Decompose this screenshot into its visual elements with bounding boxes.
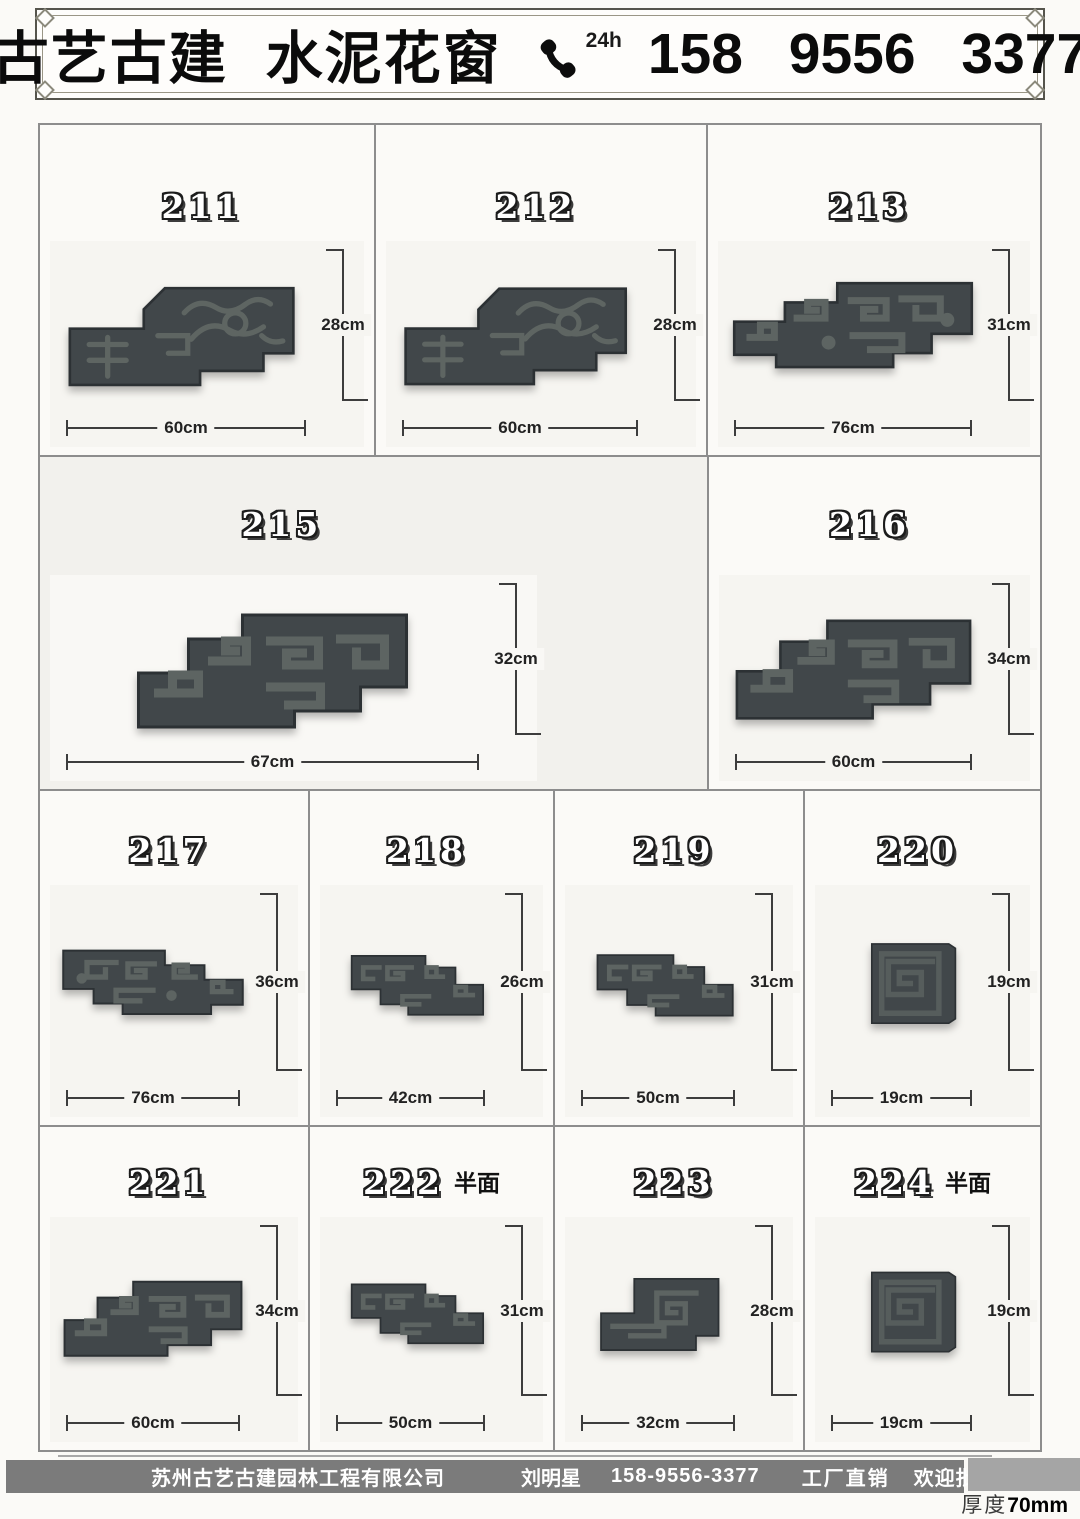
width-dimension-line: 67cm [66,761,479,763]
flower-window-piece [54,575,491,745]
product-photo: 31cm 50cm [565,885,793,1117]
flower-window-piece [819,1217,984,1406]
product-card-219: 219 31cm 50cm [555,791,805,1125]
catalog-grid: 211 28cm 60cm 212 28cm 60cm 213 31cm 76c… [38,123,1042,1452]
flower-window-piece [54,1217,252,1406]
product-card-218: 218 26cm 42cm [310,791,555,1125]
product-number: 218 [310,831,553,870]
width-dimension-line: 50cm [581,1097,735,1099]
product-photo: 32cm 67cm [50,575,537,781]
flower-window-piece [54,241,318,411]
product-number: 219 [555,831,803,870]
product-number: 211 [40,187,374,226]
product-photo: 28cm 60cm [50,241,364,447]
product-number: 217 [40,831,308,870]
product-number: 224半面 [805,1163,1040,1202]
header-content: 古艺古建 水泥花窗 24h 158 9556 3377 [49,20,1031,88]
phone-number: 158 9556 3377 [648,21,1080,87]
flower-window-piece [54,885,252,1081]
product-card-222: 222半面 31cm 50cm [310,1127,555,1450]
thickness-label: 厚度 [961,1493,1007,1517]
product-photo: 28cm 60cm [386,241,696,447]
width-dimension-line: 60cm [66,427,306,429]
width-dimension-line: 19cm [831,1422,972,1424]
product-photo: 34cm 60cm [719,575,1030,781]
height-dimension-line: 32cm [515,583,517,735]
height-dimension-line: 34cm [1008,583,1010,735]
product-number: 212 [376,187,706,226]
product-number: 221 [40,1163,308,1202]
width-dimension-line: 50cm [336,1422,485,1424]
product-card-215: 215 32cm 67cm [40,457,709,789]
product-number: 215 [40,505,534,544]
product-photo: 31cm 50cm [320,1217,543,1442]
grid-row-1: 211 28cm 60cm 212 28cm 60cm 213 31cm 76c… [40,125,1040,457]
flower-window-piece [723,575,984,745]
telephone-receiver-icon [536,33,584,81]
width-dimension-line: 42cm [336,1097,485,1099]
product-number: 222半面 [310,1163,553,1202]
product-card-216: 216 34cm 60cm [709,457,1040,789]
flower-window-piece [569,885,747,1081]
height-dimension-line: 28cm [674,249,676,401]
product-card-211: 211 28cm 60cm [40,125,376,455]
phone-group: 24h [536,27,622,81]
width-dimension-line: 76cm [66,1097,240,1099]
width-dimension-line: 19cm [831,1097,972,1099]
product-number: 220 [805,831,1040,870]
brand-title: 古艺古建 水泥花窗 [0,13,502,95]
height-dimension-line: 31cm [1008,249,1010,401]
product-photo: 26cm 42cm [320,885,543,1117]
product-photo: 28cm 32cm [565,1217,793,1442]
width-dimension-line: 60cm [735,761,972,763]
24h-badge: 24h [586,29,622,53]
height-dimension-line: 36cm [276,893,278,1071]
flower-window-piece [324,885,497,1081]
product-card-220: 220 19cm 19cm [805,791,1040,1125]
contact-phone: 158-9556-3377 [611,1465,760,1488]
footer-bar: 苏州古艺古建园林工程有限公司 刘明星 158-9556-3377 工厂直销 欢迎… [6,1460,964,1493]
width-dimension-line: 60cm [402,427,638,429]
product-photo: 31cm 76cm [718,241,1030,447]
flower-window-piece [722,241,984,411]
width-dimension-line: 76cm [734,427,972,429]
product-number: 213 [708,187,1040,226]
flower-window-piece [569,1217,747,1406]
sales-note-factory-direct: 工厂直销 [802,1462,890,1491]
flower-window-piece [390,241,650,411]
product-photo: 19cm 19cm [815,885,1030,1117]
height-dimension-line: 28cm [771,1225,773,1396]
company-name: 苏州古艺古建园林工程有限公司 [151,1462,445,1491]
grid-row-2: 215 32cm 67cm 216 34cm 60cm [40,457,1040,791]
width-dimension-line: 32cm [581,1422,735,1424]
flower-window-piece [819,885,984,1081]
height-dimension-line: 28cm [342,249,344,401]
grid-row-3: 217 36cm 76cm 218 26cm 42cm 219 31cm 50c… [40,791,1040,1127]
header-banner: 古艺古建 水泥花窗 24h 158 9556 3377 [35,8,1045,100]
product-card-213: 213 31cm 76cm [708,125,1040,455]
height-dimension-line: 31cm [521,1225,523,1396]
height-dimension-line: 26cm [521,893,523,1071]
height-dimension-line: 34cm [276,1225,278,1396]
flower-window-piece [324,1217,497,1406]
product-number: 223 [555,1163,803,1202]
product-card-223: 223 28cm 32cm [555,1127,805,1450]
product-card-224: 224半面 19cm 19cm [805,1127,1040,1450]
footer-bar-extension [968,1458,1080,1491]
product-card-221: 221 34cm 60cm [40,1127,310,1450]
height-dimension-line: 31cm [771,893,773,1071]
product-card-212: 212 28cm 60cm [376,125,708,455]
width-dimension-line: 60cm [66,1422,240,1424]
product-card-217: 217 36cm 76cm [40,791,310,1125]
grid-row-4: 221 34cm 60cm 222半面 31cm 50cm 223 28cm 3… [40,1127,1040,1450]
product-number: 216 [709,505,1040,544]
contact-name: 刘明星 [521,1462,581,1491]
product-photo: 36cm 76cm [50,885,298,1117]
height-dimension-line: 19cm [1008,1225,1010,1396]
product-photo: 34cm 60cm [50,1217,298,1442]
product-photo: 19cm 19cm [815,1217,1030,1442]
height-dimension-line: 19cm [1008,893,1010,1071]
footer-separator-line [58,1455,992,1457]
thickness-note: 厚度70mm [961,1489,1068,1519]
